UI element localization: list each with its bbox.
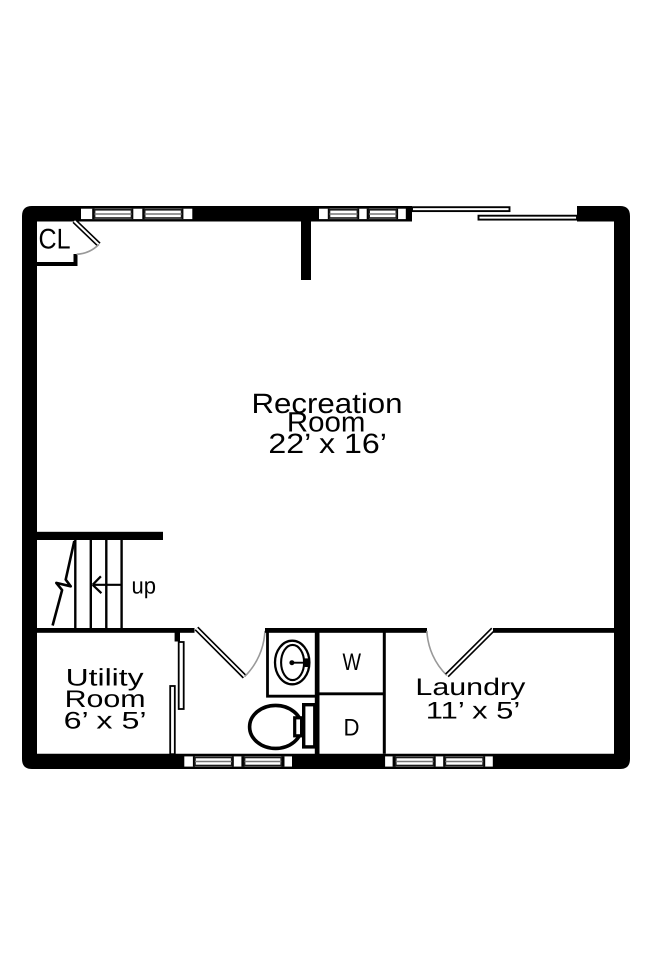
svg-text:W: W (343, 649, 362, 676)
svg-text:22’ x 16’: 22’ x 16’ (268, 428, 387, 459)
svg-text:11’ x 5’: 11’ x 5’ (426, 697, 521, 724)
svg-text:D: D (343, 714, 359, 741)
svg-text:6’ x 5’: 6’ x 5’ (64, 707, 147, 734)
svg-text:up: up (131, 572, 156, 598)
svg-text:CL: CL (38, 223, 70, 255)
